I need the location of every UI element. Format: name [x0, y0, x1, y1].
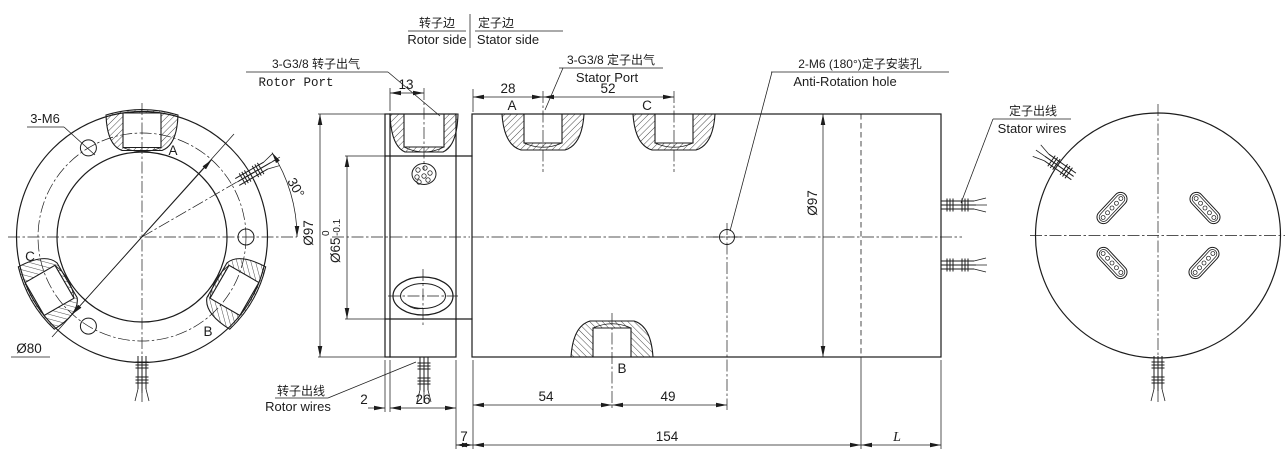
- stator-side-label-cn: 定子边: [478, 15, 514, 30]
- dim-26: 26: [415, 392, 430, 407]
- rotor-side-label-cn: 转子边: [419, 15, 455, 30]
- rotor-port-label-en: Rotor Port: [258, 76, 333, 90]
- stator-port-label-cn: 3-G3/8 定子出气: [567, 52, 655, 67]
- stator-side-label-en: Stator side: [477, 32, 539, 47]
- section-port-c-label: C: [642, 98, 652, 113]
- rotor-wires-label-cn: 转子出线: [277, 383, 325, 398]
- rotor-side-label-en: Rotor side: [407, 32, 466, 47]
- angled-port-ellipse: [388, 269, 458, 325]
- dim-49: 49: [660, 389, 675, 404]
- stator-wires-lower: [941, 258, 987, 272]
- stator-wires-upper: [941, 198, 987, 212]
- stator-wires-label-cn: 定子出线: [1009, 103, 1057, 118]
- anti-rotation-callout: 2-M6 (180°)定子安装孔 Anti-Rotation hole: [730, 56, 949, 231]
- rotor-flange-front-view: Ø80 30° 3-M6 A C B: [8, 103, 307, 402]
- anti-rotation-label-en: Anti-Rotation hole: [793, 74, 896, 89]
- bottom-chain-dimensions: 7 154 L: [456, 357, 941, 449]
- bolt-holes-label: 3-M6: [30, 111, 60, 126]
- rotor-port-label-cn: 3-G3/8 转子出气: [272, 56, 360, 71]
- port-a-label: A: [168, 143, 177, 158]
- engineering-drawing-sheet: 转子边 Rotor side 定子边 Stator side Ø80 30°: [0, 0, 1285, 464]
- spigot-diameter-label: Ø65 -0.1 0: [321, 218, 343, 263]
- dim-7: 7: [460, 429, 468, 444]
- stator-wires-label-en: Stator wires: [998, 121, 1067, 136]
- rotor-wires-bundle-30deg: [234, 153, 281, 188]
- section-port-a-label: A: [507, 98, 516, 113]
- rotor-flange-section: [332, 88, 472, 403]
- section-port-b-label: B: [617, 361, 626, 376]
- slip-ring-drawing: 转子边 Rotor side 定子边 Stator side Ø80 30°: [0, 0, 1285, 464]
- dim-52: 52: [600, 81, 615, 96]
- dim-154: 154: [656, 429, 679, 444]
- rotor-wires-label-en: Rotor wires: [265, 399, 331, 414]
- flange-diameter-label: Ø97: [301, 220, 316, 246]
- port-b-label: B: [203, 324, 212, 339]
- stator-wires-bundle-bottom: [1151, 356, 1165, 402]
- mid-bottom-dimensions: 54 49: [473, 360, 727, 449]
- dim-54: 54: [538, 389, 554, 404]
- stator-body-section: A C B Ø97: [472, 91, 987, 410]
- body-diameter-label: Ø97: [805, 190, 820, 216]
- dim-13: 13: [398, 77, 413, 92]
- stator-wires-callout: 定子出线 Stator wires: [961, 103, 1071, 203]
- dim-28: 28: [500, 81, 515, 96]
- connector-slot: [1094, 245, 1129, 282]
- connector-slot: [1094, 190, 1129, 227]
- dim-L: L: [892, 430, 901, 445]
- spigot-dia-value: Ø65: [328, 237, 343, 263]
- anti-rotation-label-cn: 2-M6 (180°)定子安装孔: [798, 56, 922, 71]
- spigot-tol-upper: 0: [321, 230, 332, 236]
- flange-dimensions: Ø97 Ø65 -0.1 0 13 2 26: [301, 77, 456, 412]
- angle-30-label: 30°: [284, 175, 307, 200]
- connector-slot: [1187, 190, 1222, 227]
- connector-slot: [1186, 245, 1221, 282]
- stator-end-view: [1030, 104, 1285, 402]
- spigot-tol-lower: -0.1: [332, 218, 343, 236]
- port-c-label: C: [25, 249, 35, 264]
- dim-2: 2: [360, 392, 368, 407]
- rotor-wires-callout: 转子出线 Rotor wires: [265, 362, 416, 414]
- bolt-circle-dia-label: Ø80: [16, 341, 42, 356]
- side-header: 转子边 Rotor side 定子边 Stator side: [407, 14, 563, 48]
